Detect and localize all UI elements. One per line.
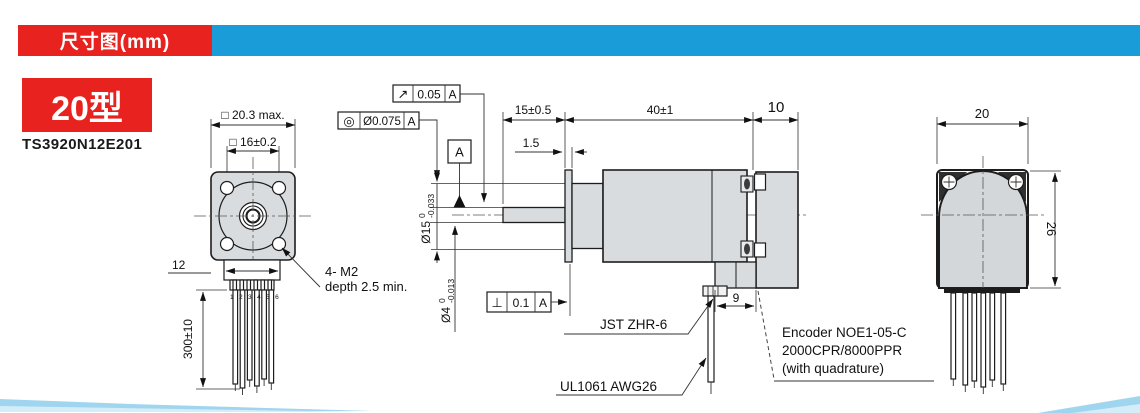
screw-hole — [221, 238, 234, 251]
motor-body — [603, 170, 747, 262]
pin-numbers: 1 2 3 4 5 6 — [230, 294, 281, 301]
tie-rod-screw — [744, 179, 750, 190]
lead-wires-rear — [951, 293, 1006, 394]
dim-lead-length: 300±10 — [181, 319, 195, 359]
screw-note-line1: 4- M2 — [325, 264, 358, 279]
encoder-note-line2: 2000CPR/8000PPR — [782, 343, 902, 358]
front-view: □ 20.3 max. □ 16±0.2 — [168, 108, 407, 395]
dim-flange-thickness: 1.5 — [523, 136, 540, 150]
screw-note-line2: depth 2.5 min. — [325, 279, 407, 294]
screw-hole — [221, 182, 234, 195]
datum-flag-label: A — [455, 145, 464, 160]
svg-text:-0.013: -0.013 — [446, 279, 456, 303]
dim-encoder-length: 10 — [768, 99, 785, 116]
footer-wave-decoration — [0, 396, 1140, 413]
dim-rear-height: 26 — [1044, 222, 1059, 236]
rear-screw — [1009, 175, 1024, 190]
screw-hole — [273, 238, 286, 251]
side-view: 15±0.5 40±1 10 1.5 Ø15 0 -0.033 Ø4 0 — [417, 99, 934, 395]
svg-text:Ø4: Ø4 — [439, 307, 453, 323]
dim-connector-offset: 9 — [733, 291, 740, 305]
encoder-notch — [755, 243, 766, 257]
encoder-note-line3: (with quadrature) — [782, 361, 884, 376]
perpendicularity-icon: ⊥ — [491, 295, 502, 310]
rear-screw — [942, 175, 957, 190]
svg-text:Ø15: Ø15 — [419, 221, 433, 244]
encoder-note-line1: Encoder NOE1-05-C — [782, 325, 907, 340]
datum-triangle — [454, 195, 466, 208]
concentricity-icon: ◎ — [343, 114, 354, 129]
dim-body-length: 40±1 — [647, 103, 674, 117]
dim-connector-width: 12 — [172, 258, 186, 272]
pilot-diameter-label: Ø15 0 -0.033 — [417, 194, 436, 244]
tie-rod-screw — [744, 244, 750, 255]
concentricity-tolerance: Ø0.075 — [363, 116, 401, 128]
lead-wires-front — [233, 290, 274, 395]
encoder-cable — [708, 296, 714, 382]
shaft-diameter-label: Ø4 0 -0.013 — [437, 279, 456, 323]
datasheet-dimension-page: 尺寸图(mm) 20型 TS3920N12E201 □ 20.3 max. □ … — [0, 0, 1140, 413]
dim-mounting-holes: □ 16±0.2 — [229, 135, 277, 149]
circular-runout-icon: ↗ — [398, 87, 409, 102]
pilot-section — [572, 184, 603, 249]
lead-connector-body — [224, 260, 280, 280]
dim-outline-square: □ 20.3 max. — [221, 108, 284, 122]
connector-label: JST ZHR-6 — [600, 317, 667, 332]
dimension-drawing: □ 20.3 max. □ 16±0.2 — [0, 0, 1140, 413]
concentricity-datum: A — [407, 115, 415, 129]
perpendicularity-datum: A — [539, 296, 547, 310]
svg-text:-0.033: -0.033 — [426, 194, 436, 218]
screw-hole — [273, 182, 286, 195]
lead-wire-label: UL1061 AWG26 — [560, 379, 657, 394]
runout-tolerance: 0.05 — [417, 88, 441, 102]
rear-view: 20 26 — [921, 106, 1061, 394]
dim-rear-width: 20 — [975, 106, 989, 121]
front-flange-plate — [565, 170, 572, 262]
runout-datum: A — [448, 88, 456, 102]
encoder-notch — [755, 174, 766, 190]
lead-base-strip — [944, 288, 1020, 293]
dim-shaft-length: 15±0.5 — [515, 103, 552, 117]
perpendicularity-tolerance: 0.1 — [513, 296, 530, 310]
shaft — [503, 208, 565, 223]
